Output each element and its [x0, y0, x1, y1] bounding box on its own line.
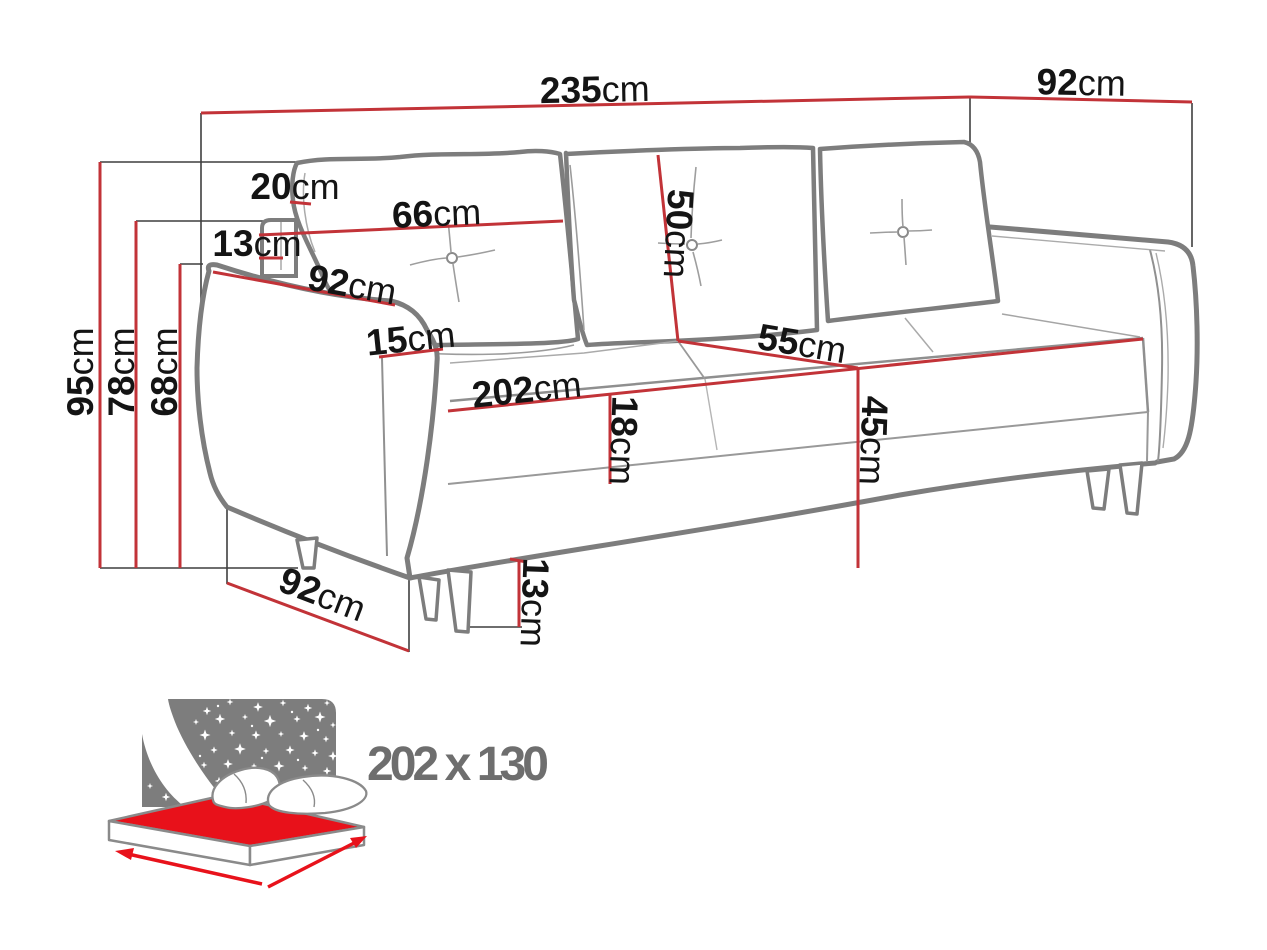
svg-text:13cm: 13cm: [212, 223, 301, 264]
svg-text:18cm: 18cm: [601, 395, 645, 486]
svg-text:50cm: 50cm: [656, 188, 702, 279]
svg-text:78cm: 78cm: [101, 327, 142, 416]
svg-text:92cm: 92cm: [1036, 61, 1126, 104]
svg-text:66cm: 66cm: [391, 191, 482, 236]
svg-text:20cm: 20cm: [250, 166, 339, 207]
svg-text:45cm: 45cm: [851, 395, 895, 486]
svg-text:95cm: 95cm: [60, 327, 101, 416]
svg-text:68cm: 68cm: [144, 327, 185, 416]
svg-text:202 x 130: 202 x 130: [367, 738, 549, 791]
svg-text:235cm: 235cm: [539, 68, 650, 111]
svg-text:13cm: 13cm: [512, 557, 556, 648]
